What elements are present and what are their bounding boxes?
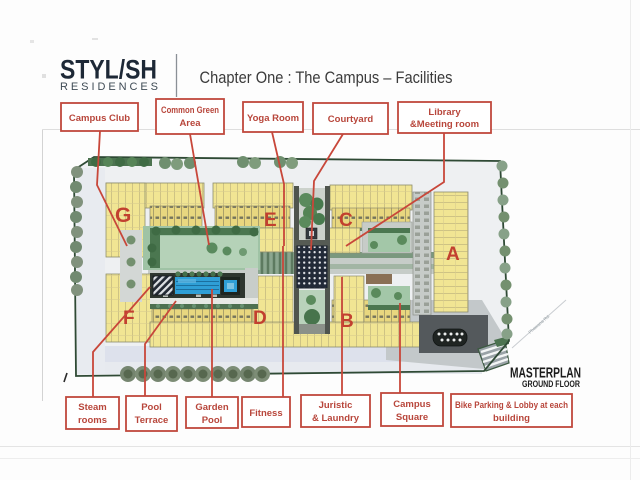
svg-text:Juristic: Juristic	[319, 400, 353, 411]
svg-text:Pool: Pool	[141, 402, 162, 413]
svg-text:RESIDENCES: RESIDENCES	[60, 81, 158, 93]
svg-text:GROUND FLOOR: GROUND FLOOR	[522, 379, 580, 390]
svg-text:Yoga Room: Yoga Room	[247, 113, 299, 124]
svg-text:STYL/SH: STYL/SH	[60, 55, 157, 85]
svg-text:Garden: Garden	[195, 402, 228, 413]
svg-text:Common Green: Common Green	[161, 105, 219, 116]
svg-text:& Laundry: & Laundry	[312, 413, 360, 424]
svg-text:A: A	[446, 244, 460, 265]
svg-text:Campus Club: Campus Club	[69, 113, 130, 124]
svg-text:Pool: Pool	[202, 415, 223, 426]
svg-text:G: G	[115, 204, 131, 227]
svg-text:Terrace: Terrace	[135, 415, 169, 426]
svg-text:building: building	[493, 413, 530, 424]
svg-text:Steam: Steam	[78, 402, 107, 413]
svg-text:Courtyard: Courtyard	[328, 114, 374, 125]
svg-text:E: E	[264, 210, 277, 231]
svg-text:Bike Parking & Lobby at each: Bike Parking & Lobby at each	[455, 400, 568, 411]
svg-text:Square: Square	[396, 412, 428, 423]
svg-text:D: D	[253, 308, 267, 329]
svg-text:C: C	[339, 210, 353, 231]
svg-text:Chapter One : The Campus – Fac: Chapter One : The Campus – Facilities	[200, 69, 453, 87]
svg-text:Campus: Campus	[393, 399, 430, 410]
svg-text:Library: Library	[428, 107, 461, 118]
svg-text:rooms: rooms	[78, 415, 107, 426]
svg-text:&Meeting room: &Meeting room	[410, 119, 479, 130]
svg-text:Fitness: Fitness	[249, 408, 282, 419]
svg-text:Area: Area	[179, 118, 201, 129]
